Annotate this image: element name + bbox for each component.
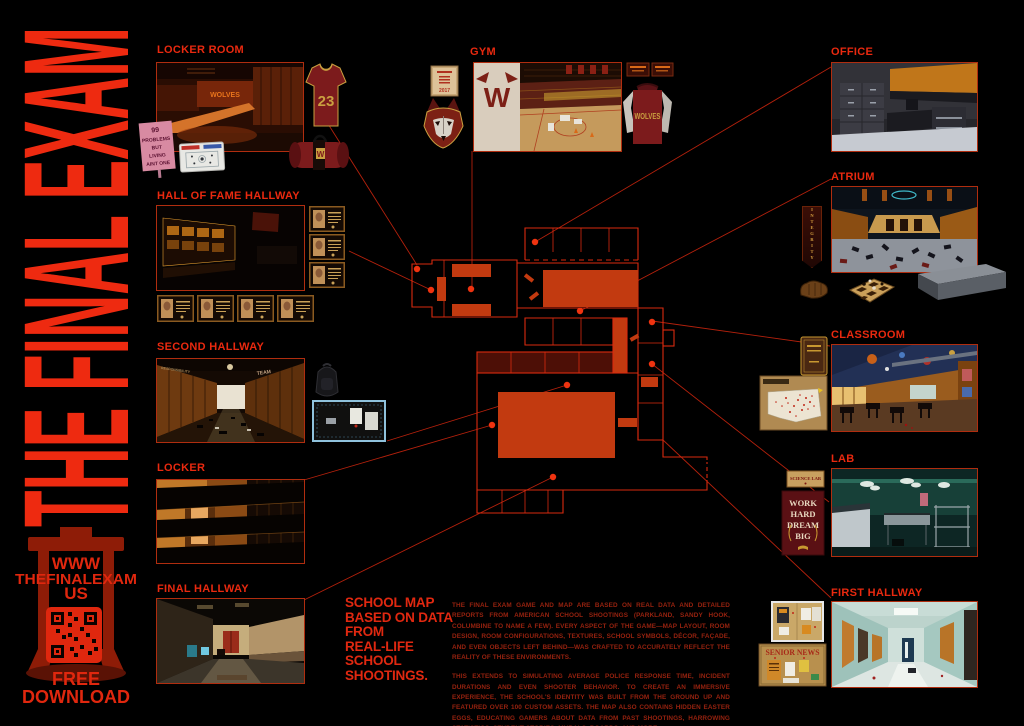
chessboard	[844, 274, 898, 306]
sweatshirt-text: WOLVES	[635, 112, 662, 121]
wolf-mascot-icon	[421, 98, 466, 148]
qr-code[interactable]	[46, 607, 102, 663]
label-office: OFFICE	[831, 46, 873, 58]
portrait-plaque	[157, 295, 194, 322]
map-gym-room	[543, 270, 638, 307]
body-paragraph-2: THIS EXTENDS TO SIMULATING AVERAGE POLIC…	[452, 672, 730, 726]
portrait-plaque	[309, 206, 345, 232]
portrait-plaque	[309, 262, 345, 288]
certificate: 2017	[431, 66, 458, 96]
portrait-plaque	[309, 234, 345, 260]
label-locker-room: LOCKER ROOM	[157, 44, 244, 56]
svg-text:DREAM: DREAM	[787, 520, 819, 530]
portrait-plaque	[197, 295, 234, 322]
label-atrium: ATRIUM	[831, 171, 875, 183]
portrait-plaque	[237, 295, 274, 322]
svg-text:DOWNLOAD[interactable]: DOWNLOAD	[22, 687, 130, 707]
backpack	[313, 360, 341, 398]
lab-screenshot	[831, 468, 978, 557]
wolves-sweatshirt: WOLVES	[621, 79, 674, 149]
final-hallway-screenshot	[156, 598, 305, 684]
label-locker: LOCKER	[157, 462, 205, 474]
svg-text:BUT: BUT	[151, 145, 162, 152]
science-lab-sign: SCIENCE LAB	[787, 471, 824, 487]
label-second-hallway: SECOND HALLWAY	[157, 341, 264, 353]
poster-title: THE FINAL EXAM	[8, 27, 148, 527]
label-gym: GYM	[470, 46, 496, 58]
poster-page: THE FINAL EXAM LOCKER ROOM GYM OFFICE HA…	[0, 0, 1024, 726]
basketball-jersey: 23	[306, 64, 346, 126]
bench	[908, 258, 1010, 302]
second-hallway-screenshot: RESPONSIBILITY TEAM	[156, 358, 305, 443]
svg-text:SCIENCE LAB: SCIENCE LAB	[790, 476, 821, 481]
integrity-banner: INTEGRITY	[802, 206, 822, 268]
classroom-screenshot	[831, 344, 978, 432]
book	[801, 337, 827, 375]
banner-plaque	[652, 63, 673, 76]
svg-text:99: 99	[151, 127, 159, 135]
banner-plaque	[627, 63, 649, 76]
first-hallway-screenshot	[831, 601, 978, 688]
usa-shootings-map	[760, 376, 827, 430]
protest-sign: 99 PROBLEMS BUT LIVING AINT ONE	[139, 121, 177, 180]
label-classroom: CLASSROOM	[831, 329, 905, 341]
senior-news-title: SENIOR NEWS	[766, 648, 821, 657]
school-floor-plan-map	[412, 228, 707, 513]
bulletin-board-blue	[312, 400, 386, 442]
play-whiteboard	[179, 142, 224, 172]
website-url[interactable]: WWW THEFINALEXAM US	[15, 554, 137, 603]
duffel-bag: W	[286, 134, 352, 172]
label-final-hallway: FINAL HALLWAY	[157, 583, 249, 595]
motivation-poster: WORK HARD DREAM BIG	[782, 491, 824, 555]
certificate-year: 2017	[439, 88, 450, 94]
poster-title-block: THE FINAL EXAM	[8, 15, 148, 535]
locker-room-screenshot: WOLVES	[156, 62, 304, 152]
body-copy: THE FINAL EXAM GAME AND MAP ARE BASED ON…	[452, 601, 730, 726]
svg-text:W: W	[317, 150, 325, 159]
svg-text:FREE[interactable]: FREE	[52, 669, 100, 689]
gym-wall-letter: W	[484, 82, 511, 113]
download-block: WWW THEFINALEXAM US FREE DOWN	[10, 523, 142, 713]
locker-view-screenshot	[156, 479, 305, 564]
office-screenshot	[831, 62, 978, 152]
label-first-hallway: FIRST HALLWAY	[831, 587, 923, 599]
baseball-glove	[797, 277, 831, 299]
label-hall-of-fame: HALL OF FAME HALLWAY	[157, 190, 300, 202]
cork-board	[771, 601, 824, 642]
hall-of-fame-screenshot	[156, 205, 305, 291]
jersey-number: 23	[318, 93, 335, 110]
gym-screenshot: W	[473, 62, 622, 152]
svg-text:HARD: HARD	[790, 509, 815, 519]
label-lab: LAB	[831, 453, 855, 465]
svg-text:WORK: WORK	[789, 498, 817, 508]
portrait-plaque	[277, 295, 314, 322]
svg-text:BIG: BIG	[795, 531, 811, 541]
senior-news-board: SENIOR NEWS	[759, 644, 826, 686]
locker-room-wall-text: WOLVES	[210, 92, 240, 99]
svg-text:US[interactable]: US	[64, 584, 88, 603]
body-paragraph-1: THE FINAL EXAM GAME AND MAP ARE BASED ON…	[452, 601, 730, 663]
map-atrium-room	[498, 392, 615, 458]
